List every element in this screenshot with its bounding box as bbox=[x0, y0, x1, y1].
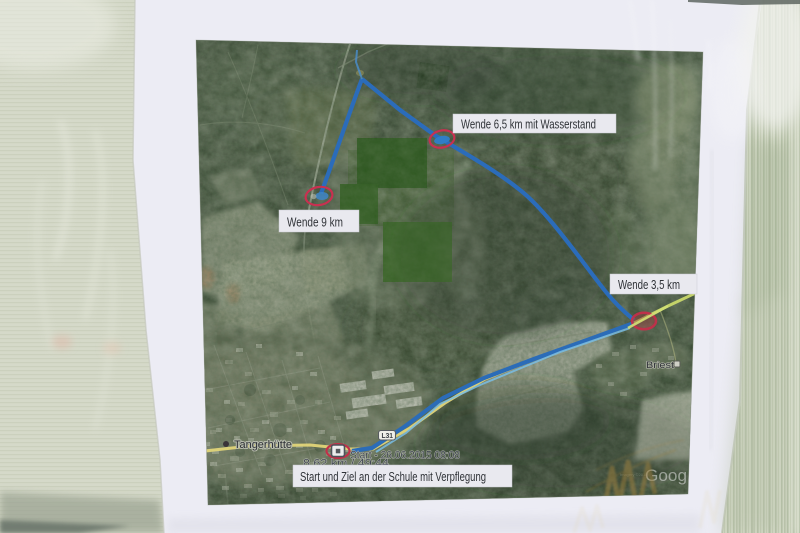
svg-text:Briest: Briest bbox=[646, 360, 675, 370]
svg-text:Wende 3,5 km: Wende 3,5 km bbox=[618, 278, 680, 292]
svg-text:Tangerhütte: Tangerhütte bbox=[234, 439, 292, 451]
svg-text:Wende 6,5 km mit Wasserstand: Wende 6,5 km mit Wasserstand bbox=[461, 118, 596, 132]
svg-text:Start und Ziel an der Schule m: Start und Ziel an der Schule mit Verpfle… bbox=[300, 470, 486, 484]
svg-text:L31: L31 bbox=[382, 431, 394, 440]
svg-text:Wende 9 km: Wende 9 km bbox=[287, 216, 343, 230]
